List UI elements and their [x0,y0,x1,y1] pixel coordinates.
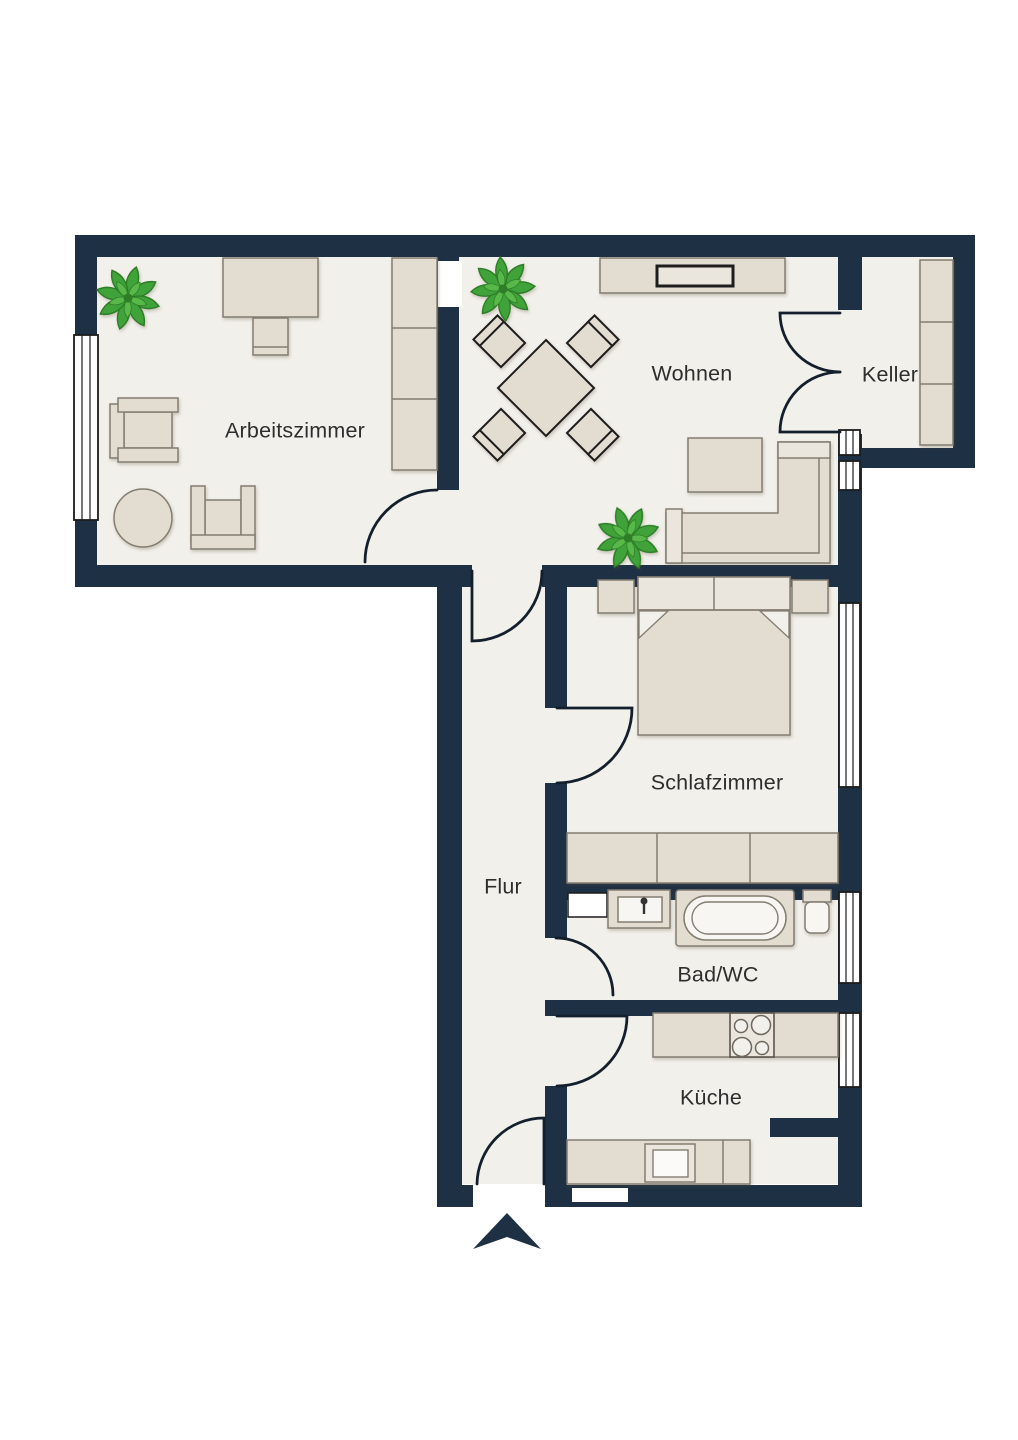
window [839,430,860,455]
coffee-table [688,438,762,492]
room-label-schlafzimmer: Schlafzimmer [651,771,784,796]
window [572,1188,628,1202]
shelf [920,260,953,445]
nightstand [598,580,634,613]
bathtub [676,890,794,946]
floorplan-svg [0,0,1018,1440]
wall-segment [75,565,459,587]
window [839,892,860,983]
room-label-bad-wc: Bad/WC [677,963,758,988]
entrance-arrow [473,1213,541,1249]
wall-segment [437,565,462,1207]
window [74,335,98,520]
keller-furniture [920,260,953,445]
double-bed [638,577,790,735]
desk [223,258,318,317]
wall-segment [545,1086,567,1185]
wall-segment [459,565,472,587]
wardrobe [392,258,437,470]
wall-segment [75,235,975,257]
wall-segment [770,1118,862,1137]
window [839,461,860,490]
toilet [803,890,831,933]
wall-opening [438,261,462,307]
room-label-wohnen: Wohnen [652,362,733,387]
room-label-flur: Flur [484,875,522,900]
shaft-niche [568,893,607,917]
sink [608,890,670,928]
keller-doorway-floor [838,310,862,434]
floorplan: Arbeitszimmer Wohnen Keller Schlafzimmer… [0,0,1018,1440]
wall-segment [545,783,567,938]
room-label-kueche: Küche [680,1086,742,1111]
nightstand [792,580,828,613]
kitchen-sink [645,1144,695,1182]
armchair [110,398,178,462]
wall-segment [437,1185,473,1207]
room-label-keller: Keller [862,363,918,388]
tv [657,266,733,286]
side-table [114,489,172,547]
wall-segment [953,235,975,468]
stove [730,1013,774,1057]
wall-segment [545,587,567,708]
room-label-arbeitszimmer: Arbeitszimmer [225,419,365,444]
wardrobe [567,833,838,883]
window [839,603,860,787]
desk-chair [253,318,288,355]
window [839,1013,860,1087]
